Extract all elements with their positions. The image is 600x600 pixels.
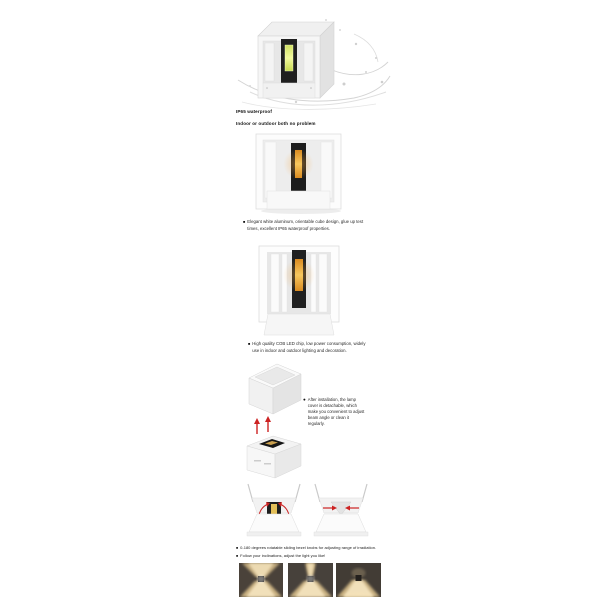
beam-adjust-closed-image: [310, 482, 372, 540]
design-feature-text: ■ Elegant white aluminum, orientable cub…: [243, 219, 373, 233]
cob-feature-text: ■ High quality COB LED chip, low power c…: [248, 341, 370, 355]
cob-feature-label: High quality COB LED chip, low power con…: [252, 341, 370, 355]
product-description-page: IP65 waterproof Indoor or outdoor both n…: [0, 0, 600, 600]
cob-frame-image: [258, 245, 340, 337]
adjust-feature-text-1: ■ 0-180 degrees rotatable sliding bezel …: [236, 545, 376, 551]
lamp-cover-icon: [249, 364, 301, 414]
bullet-icon: ■: [248, 341, 250, 355]
up-arrow-icon: [254, 416, 271, 434]
waterproof-caption-line2: Indoor or outdoor both no problem: [236, 121, 316, 126]
adjust-feature-text-2: ■ Follow your inclinations, adjust the l…: [236, 553, 325, 559]
bullet-icon: ■: [243, 219, 245, 233]
detachable-note: ● After installation, the lamp cover is …: [303, 397, 365, 427]
exploded-view-image: [243, 362, 305, 480]
bullet-icon: ■: [236, 553, 238, 559]
detachable-note-label: After installation, the lamp cover is de…: [308, 397, 365, 427]
waterproof-hero-image: [236, 14, 392, 110]
adjust-feature-label-2: Follow your inclinations, adjust the lig…: [240, 553, 325, 559]
design-feature-label: Elegant white aluminum, orientable cube …: [247, 219, 373, 233]
adjust-feature-label-1: 0-180 degrees rotatable sliding bezel kn…: [240, 545, 376, 551]
lamp-body-icon: [247, 436, 301, 478]
beam-adjust-open-image: [242, 482, 306, 540]
beam-photo-narrow-up: [288, 563, 333, 597]
cube-lamp-front-image: [255, 133, 343, 215]
cube-lamp-3d-icon: [258, 22, 334, 98]
beam-photo-wide-updown: [239, 563, 283, 597]
bullet-icon: ●: [303, 397, 306, 427]
beam-photo-down-only: [336, 563, 381, 597]
bullet-icon: ■: [236, 545, 238, 551]
waterproof-caption-line1: IP65 waterproof: [236, 109, 272, 114]
